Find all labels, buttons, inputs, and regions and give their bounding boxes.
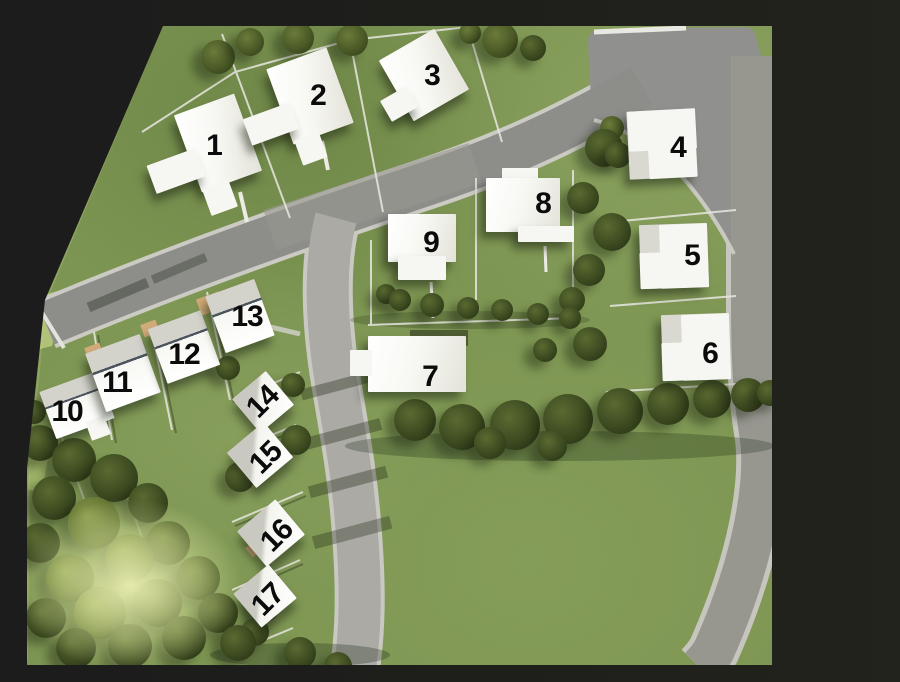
lot-number-7: 7: [422, 362, 438, 392]
tree: [537, 431, 567, 461]
house-7: [368, 336, 466, 392]
tree: [597, 388, 643, 434]
tree: [757, 380, 783, 406]
tree: [336, 24, 368, 56]
tree: [647, 383, 689, 425]
lot-number-13: 13: [231, 302, 262, 332]
house-8-wing: [518, 226, 574, 242]
lot-number-9: 9: [423, 228, 439, 258]
lot-number-8: 8: [535, 189, 551, 219]
lot-number-5: 5: [684, 241, 700, 271]
lot-number-1: 1: [206, 131, 222, 161]
tree: [559, 307, 581, 329]
lot-number-12: 12: [168, 340, 199, 370]
lot-number-11: 11: [102, 368, 132, 398]
tree: [420, 293, 444, 317]
tree: [162, 616, 206, 660]
house-9: [388, 214, 456, 262]
tree: [389, 289, 411, 311]
tree: [106, 534, 154, 582]
tree: [201, 40, 235, 74]
tree: [284, 637, 316, 669]
tree: [22, 400, 46, 424]
tree: [26, 598, 66, 638]
tree: [491, 299, 513, 321]
tree: [474, 427, 506, 459]
lot-number-10: 10: [51, 397, 82, 427]
lot-number-3: 3: [424, 61, 440, 91]
tree: [220, 625, 256, 661]
render-canvas: 1 2 3 4 5 6 7 8 9 10 11 12 13 14 15 16 1…: [0, 0, 900, 682]
tree: [527, 303, 549, 325]
tree: [108, 624, 152, 668]
tree: [573, 327, 607, 361]
tree: [459, 22, 481, 44]
site-plan: 1 2 3 4 5 6 7 8 9 10 11 12 13 14 15 16 1…: [0, 0, 900, 682]
tree: [573, 254, 605, 286]
house-6-roof: [661, 341, 730, 381]
tree: [533, 338, 557, 362]
lot-number-2: 2: [310, 81, 326, 111]
tree: [593, 213, 631, 251]
tree: [693, 380, 731, 418]
tree: [394, 399, 436, 441]
tree: [482, 22, 518, 58]
tree: [20, 523, 60, 563]
tree: [216, 356, 240, 380]
house-9-wing: [398, 256, 446, 280]
lot-number-4: 4: [670, 133, 686, 163]
lot-number-6: 6: [702, 339, 718, 369]
tree: [567, 182, 599, 214]
tree: [282, 22, 314, 54]
tree: [56, 628, 96, 668]
tree: [236, 28, 264, 56]
tree: [520, 35, 546, 61]
tree: [128, 483, 168, 523]
tree: [324, 652, 352, 680]
tree: [457, 297, 479, 319]
house-7-garage: [350, 350, 372, 376]
